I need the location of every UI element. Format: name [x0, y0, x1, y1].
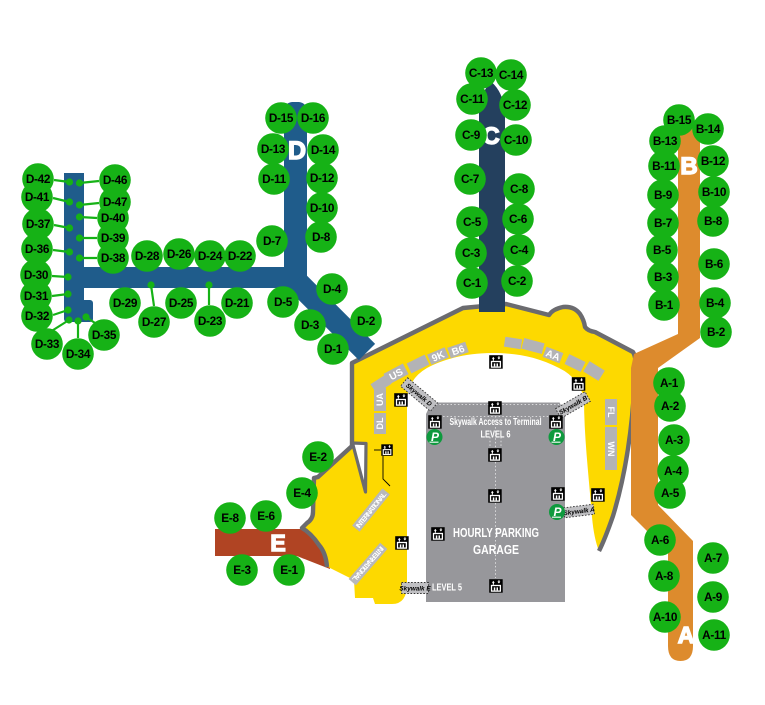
svg-text:C-12: C-12: [503, 98, 528, 112]
svg-text:D-47: D-47: [103, 195, 128, 209]
svg-text:B-2: B-2: [707, 325, 726, 339]
svg-text:C-8: C-8: [510, 182, 529, 196]
svg-text:A-2: A-2: [661, 399, 680, 413]
svg-text:D-39: D-39: [101, 231, 126, 245]
svg-text:D: D: [288, 137, 306, 165]
svg-text:E-3: E-3: [233, 563, 251, 577]
svg-text:A-1: A-1: [660, 376, 679, 390]
svg-text:B-12: B-12: [701, 154, 726, 168]
svg-text:D-25: D-25: [169, 296, 194, 310]
svg-text:A-7: A-7: [704, 551, 723, 565]
svg-text:Skywalk Access to Terminal: Skywalk Access to Terminal: [450, 417, 542, 428]
svg-text:D-13: D-13: [261, 142, 286, 156]
svg-text:Skywalk E: Skywalk E: [399, 585, 431, 592]
svg-text:B-8: B-8: [704, 214, 723, 228]
svg-text:C-3: C-3: [462, 246, 481, 260]
svg-text:D-31: D-31: [24, 289, 49, 303]
svg-text:C-13: C-13: [469, 66, 494, 80]
svg-text:B-9: B-9: [654, 188, 673, 202]
svg-text:B-10: B-10: [702, 185, 727, 199]
svg-text:C-14: C-14: [499, 68, 524, 82]
svg-text:B-5: B-5: [653, 243, 672, 257]
svg-text:WN: WN: [606, 442, 616, 457]
svg-text:B-4: B-4: [706, 296, 725, 310]
svg-text:A-5: A-5: [661, 486, 680, 500]
svg-text:E: E: [270, 530, 285, 556]
svg-text:A-8: A-8: [655, 569, 674, 583]
svg-text:A-3: A-3: [665, 433, 684, 447]
svg-text:D-24: D-24: [198, 249, 223, 263]
svg-text:GARAGE: GARAGE: [473, 542, 519, 557]
svg-text:D-28: D-28: [135, 249, 160, 263]
svg-text:D-42: D-42: [26, 172, 51, 186]
svg-text:D-14: D-14: [311, 143, 336, 157]
svg-text:D-41: D-41: [25, 190, 50, 204]
svg-text:C-4: C-4: [510, 243, 529, 257]
svg-text:A-9: A-9: [704, 590, 723, 604]
svg-text:A: A: [678, 622, 695, 648]
svg-text:D-40: D-40: [101, 211, 126, 225]
svg-text:D-36: D-36: [25, 242, 50, 256]
svg-text:E-2: E-2: [309, 450, 327, 464]
svg-text:D-1: D-1: [324, 342, 343, 356]
svg-text:D-22: D-22: [228, 249, 253, 263]
svg-text:D-8: D-8: [312, 230, 331, 244]
svg-text:C-11: C-11: [460, 92, 484, 106]
svg-text:E-1: E-1: [280, 563, 298, 577]
svg-text:C-5: C-5: [463, 215, 482, 229]
svg-text:D-12: D-12: [310, 171, 335, 185]
svg-text:B-15: B-15: [667, 113, 692, 127]
svg-text:D-11: D-11: [262, 172, 286, 186]
svg-text:A-11: A-11: [702, 628, 726, 642]
svg-text:B: B: [680, 153, 697, 180]
svg-text:E-6: E-6: [257, 509, 275, 523]
svg-text:E-8: E-8: [221, 511, 239, 525]
svg-text:D-23: D-23: [198, 314, 223, 328]
svg-text:B-6: B-6: [705, 257, 724, 271]
svg-text:D-15: D-15: [269, 111, 294, 125]
svg-text:B-14: B-14: [696, 122, 721, 136]
svg-text:D-10: D-10: [310, 201, 335, 215]
svg-text:B-3: B-3: [654, 270, 673, 284]
svg-text:D-4: D-4: [323, 282, 342, 296]
svg-text:D-29: D-29: [113, 296, 138, 310]
svg-text:D-5: D-5: [274, 295, 293, 309]
svg-text:C-1: C-1: [463, 276, 482, 290]
svg-text:D-2: D-2: [357, 314, 376, 328]
svg-text:D-26: D-26: [167, 247, 192, 261]
svg-text:C-6: C-6: [509, 212, 528, 226]
svg-text:A-6: A-6: [651, 533, 670, 547]
svg-text:C-2: C-2: [508, 274, 527, 288]
svg-text:D-46: D-46: [103, 173, 128, 187]
svg-text:LEVEL 5: LEVEL 5: [432, 583, 462, 594]
svg-text:A-4: A-4: [664, 464, 683, 478]
svg-text:UA: UA: [375, 393, 385, 406]
svg-text:D-37: D-37: [26, 217, 51, 231]
svg-text:D-21: D-21: [225, 296, 250, 310]
svg-text:D-3: D-3: [301, 318, 320, 332]
svg-text:B-7: B-7: [654, 216, 673, 230]
svg-text:C-10: C-10: [504, 133, 529, 147]
svg-text:D-33: D-33: [35, 337, 60, 351]
svg-text:DL: DL: [375, 417, 385, 429]
svg-text:D-16: D-16: [301, 111, 326, 125]
svg-text:D-35: D-35: [92, 328, 117, 342]
svg-text:C-9: C-9: [462, 128, 481, 142]
svg-text:E-4: E-4: [293, 486, 311, 500]
svg-text:B-13: B-13: [653, 134, 678, 148]
svg-text:D-7: D-7: [263, 234, 282, 248]
svg-text:D-30: D-30: [24, 268, 49, 282]
svg-text:D-32: D-32: [25, 309, 50, 323]
svg-text:D-27: D-27: [142, 315, 167, 329]
svg-text:D-38: D-38: [101, 251, 126, 265]
svg-text:HOURLY PARKING: HOURLY PARKING: [453, 525, 539, 540]
svg-text:FL: FL: [606, 407, 616, 418]
svg-text:LEVEL 6: LEVEL 6: [481, 430, 511, 441]
svg-text:B-1: B-1: [655, 298, 674, 312]
svg-text:D-34: D-34: [66, 347, 91, 361]
svg-text:A-10: A-10: [653, 610, 678, 624]
svg-text:B-11: B-11: [652, 159, 676, 173]
svg-text:C-7: C-7: [461, 172, 480, 186]
